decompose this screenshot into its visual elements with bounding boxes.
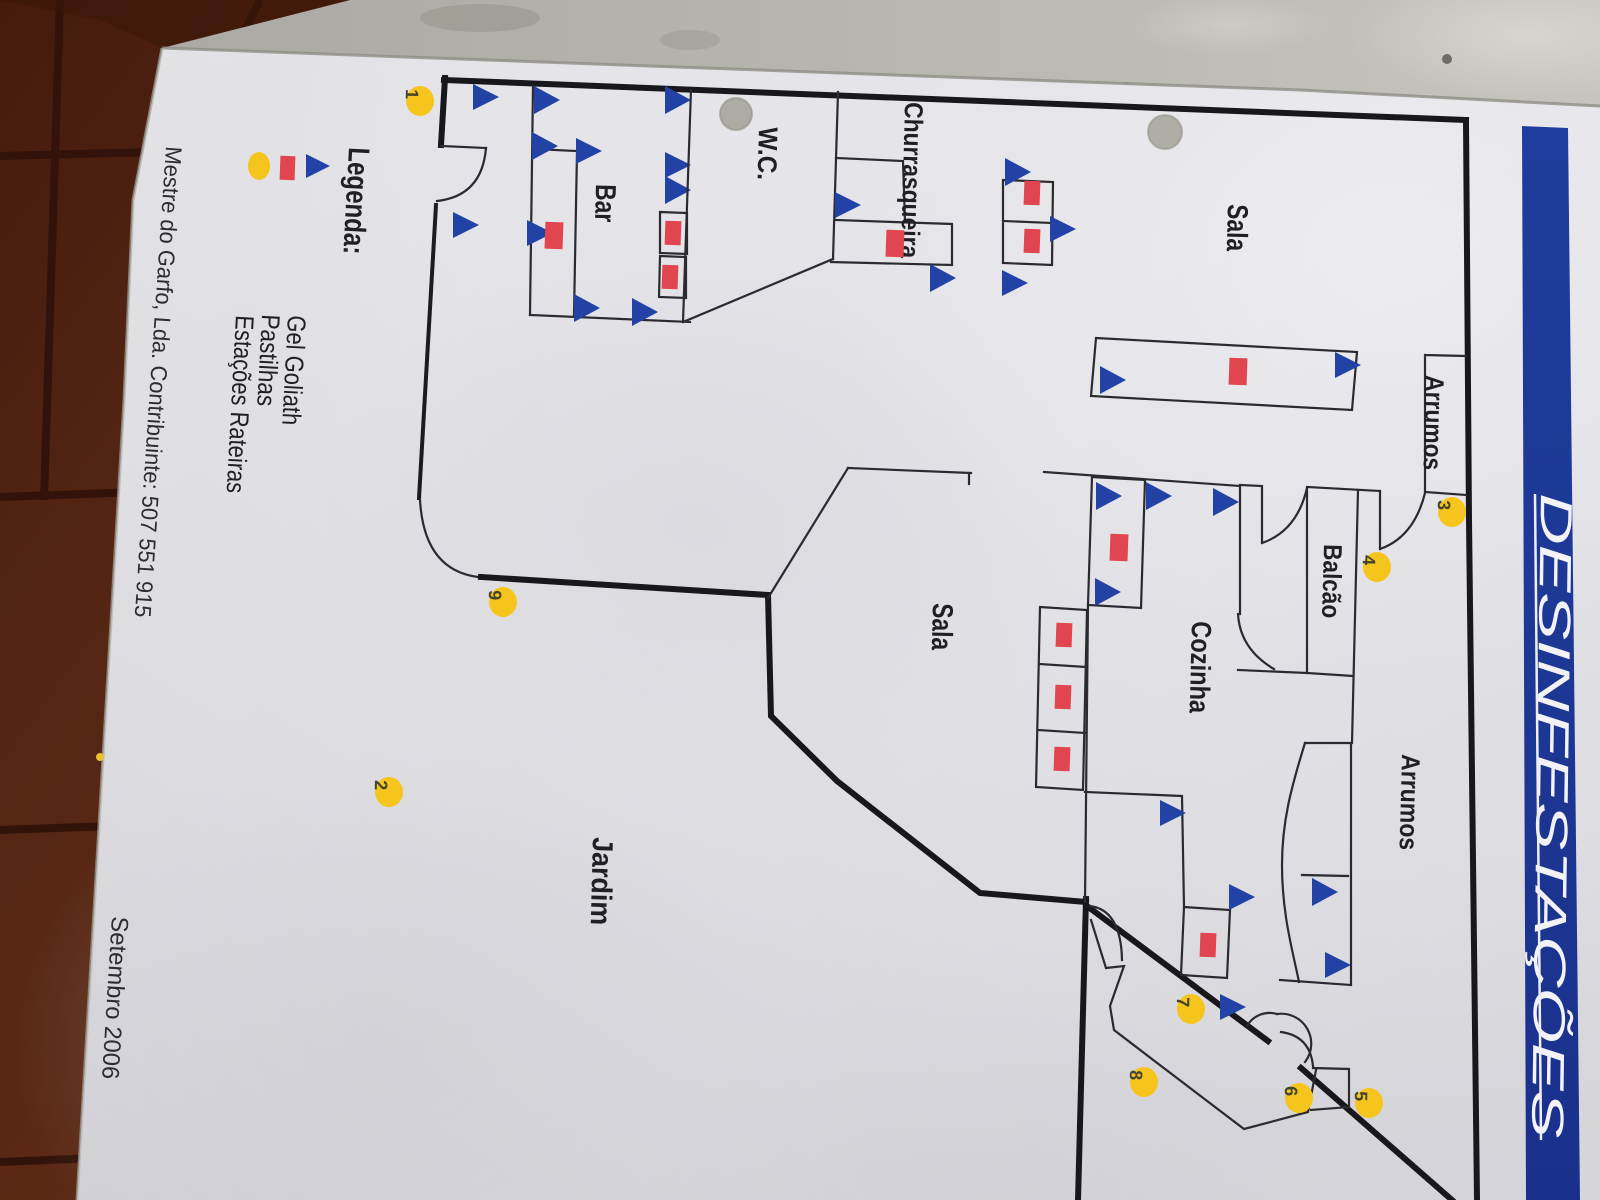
svg-text:Bar: Bar <box>588 184 621 223</box>
svg-text:1: 1 <box>402 89 422 100</box>
svg-text:8: 8 <box>1126 1070 1146 1081</box>
svg-text:Arrumos: Arrumos <box>1418 375 1450 471</box>
svg-text:4: 4 <box>1359 555 1379 566</box>
svg-text:6: 6 <box>1281 1086 1301 1097</box>
svg-text:DESINFESTAÇÕES: DESINFESTAÇÕES <box>1522 493 1582 1139</box>
svg-text:5: 5 <box>1351 1091 1371 1102</box>
svg-text:Jardim: Jardim <box>584 837 618 926</box>
svg-text:Arrumos: Arrumos <box>1393 754 1426 851</box>
svg-text:Legenda:: Legenda: <box>336 147 375 256</box>
svg-text:3: 3 <box>1434 500 1454 511</box>
svg-text:Sala: Sala <box>1220 204 1253 252</box>
svg-text:Sala: Sala <box>925 603 958 651</box>
svg-text:Cozinha: Cozinha <box>1184 621 1217 714</box>
svg-text:2: 2 <box>371 780 391 791</box>
svg-text:Balcão: Balcão <box>1316 544 1348 619</box>
svg-text:9: 9 <box>485 590 505 601</box>
svg-text:7: 7 <box>1173 997 1193 1008</box>
svg-text:W.C.: W.C. <box>752 127 783 181</box>
